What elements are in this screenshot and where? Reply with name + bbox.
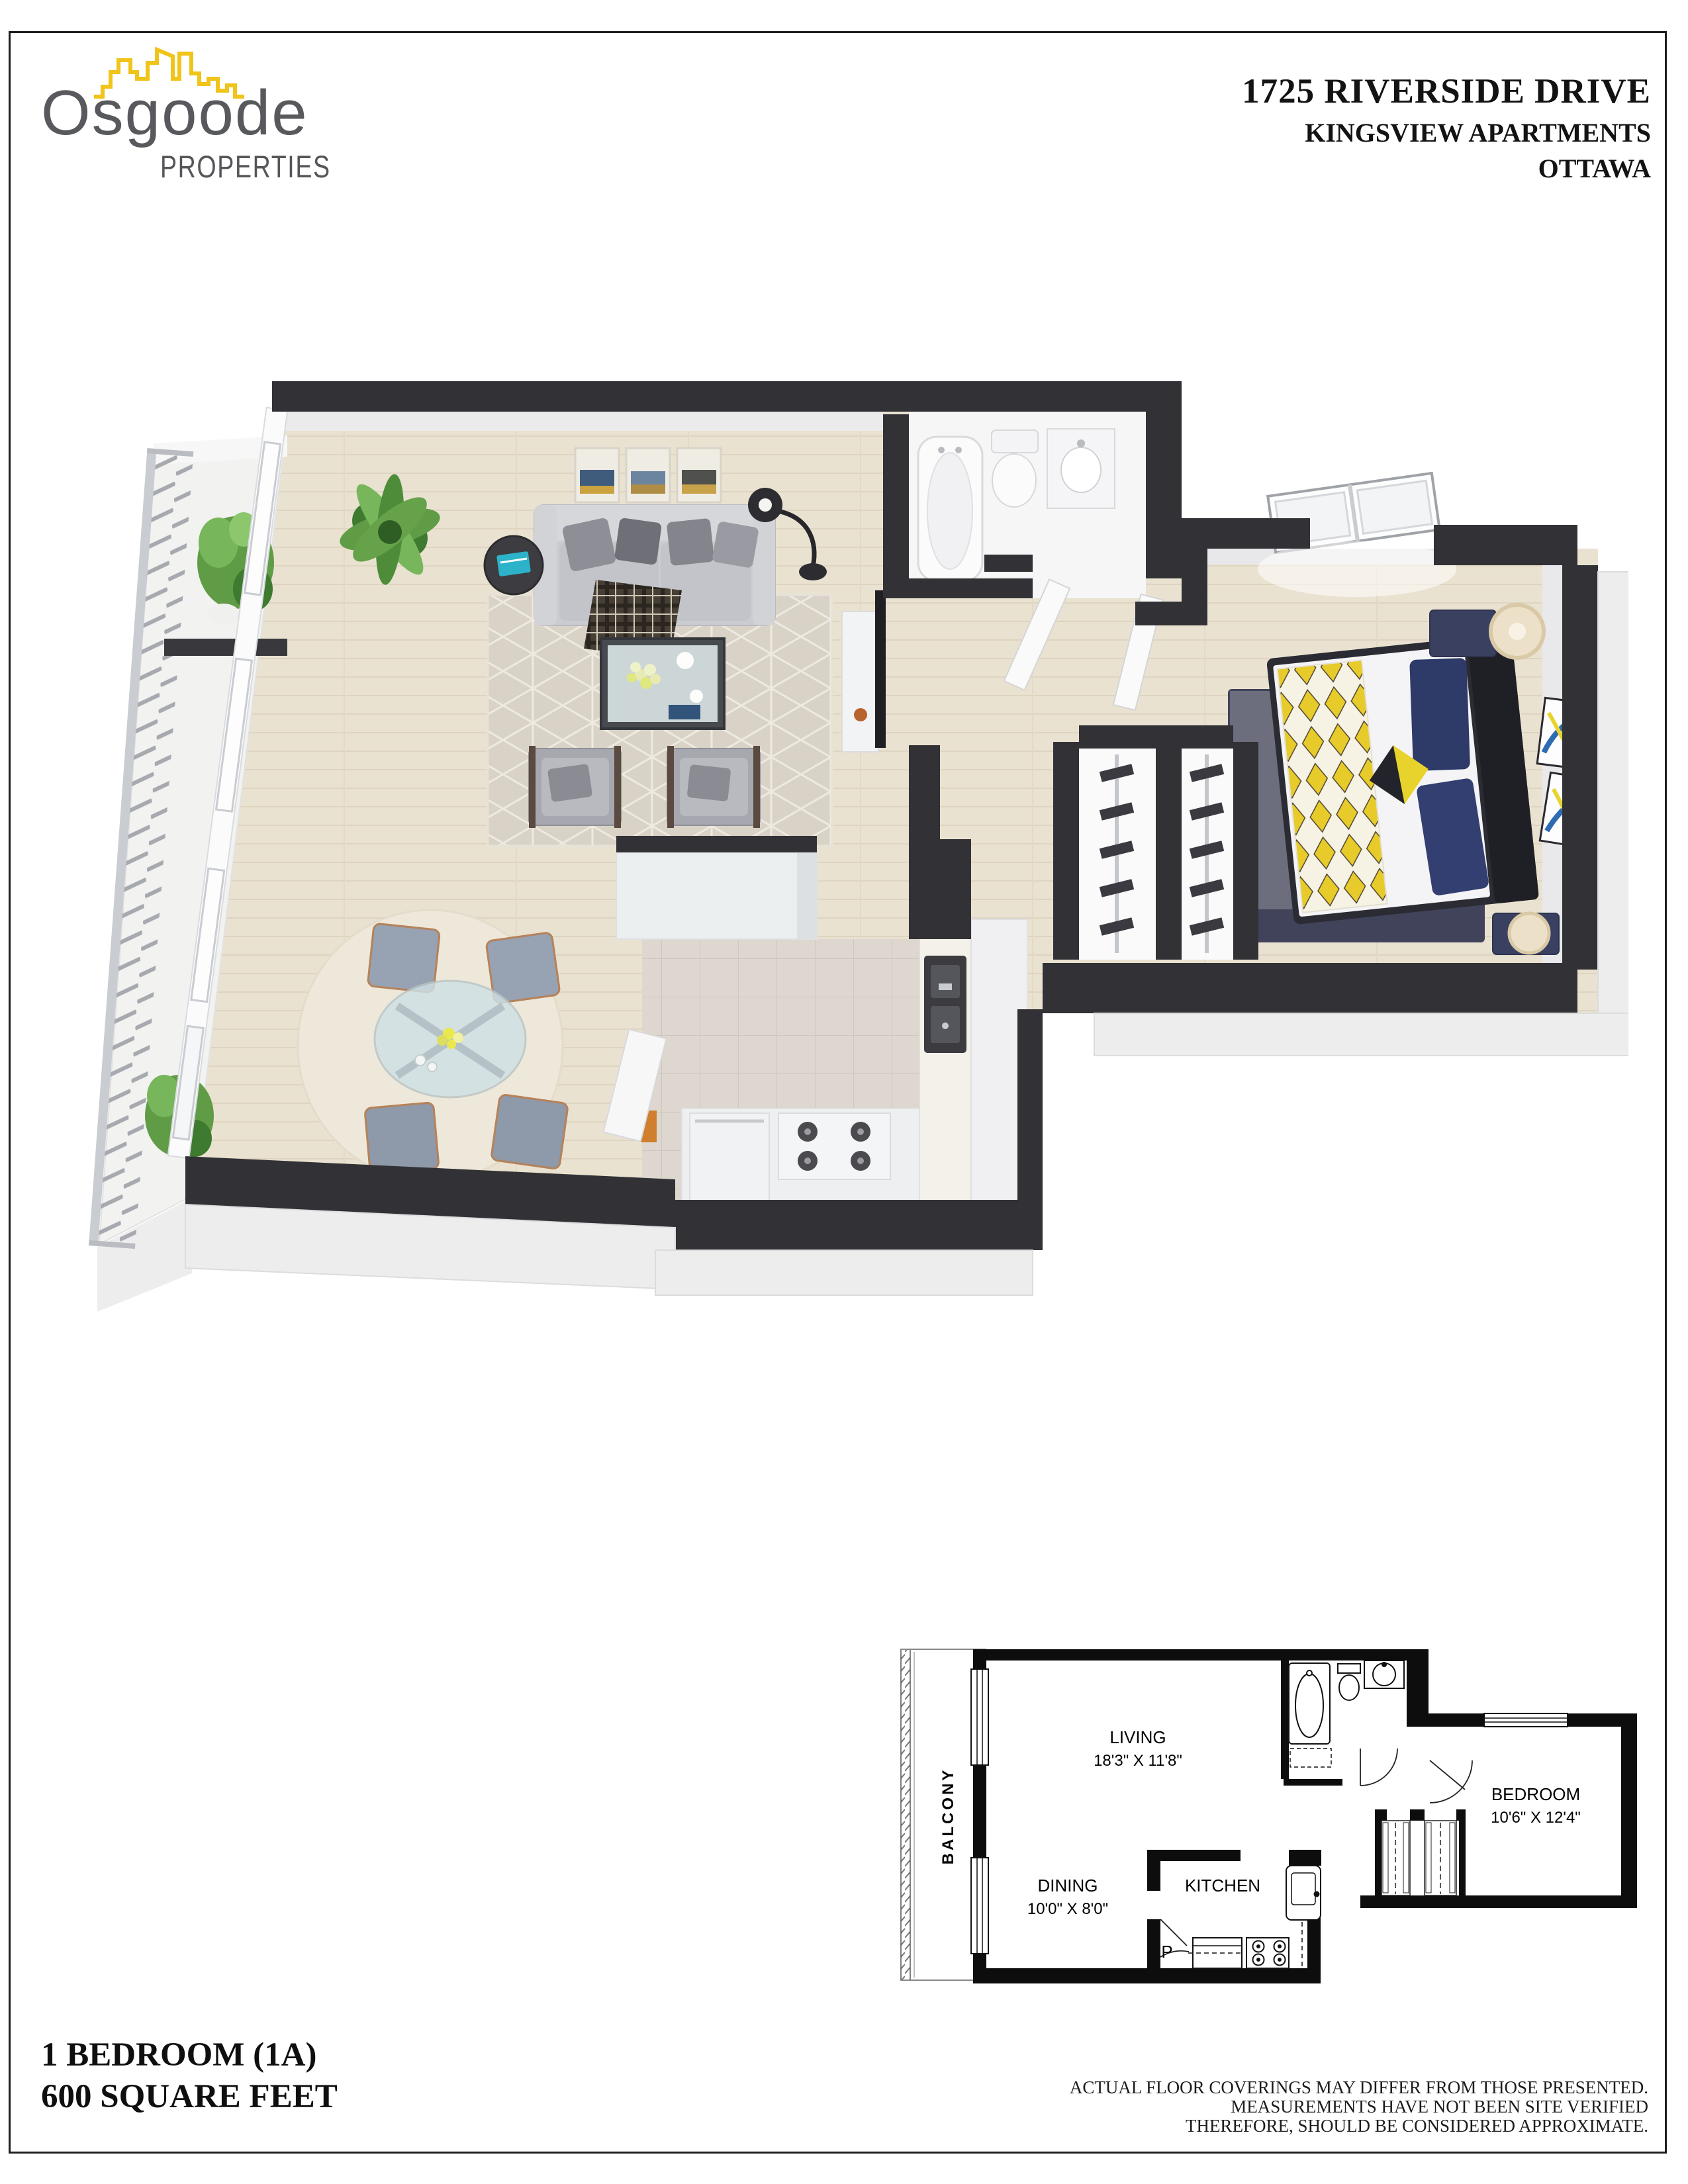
balcony-divider: [164, 639, 287, 656]
closets-2d: [1382, 1821, 1456, 1895]
unit-info: 1 BEDROOM (1A) 600 SQUARE FEET: [41, 2034, 338, 2118]
side-table: [485, 536, 543, 594]
bathroom-vanity: [1047, 429, 1115, 508]
disclaimer-line: THEREFORE, SHOULD BE CONSIDERED APPROXIM…: [1070, 2116, 1648, 2136]
floor-plan-3d: [86, 344, 1628, 1324]
dining-label: DINING: [1038, 1876, 1098, 1895]
bathroom-2d: [1289, 1661, 1404, 1767]
dining-3d: [298, 910, 568, 1181]
television: [875, 590, 886, 748]
address-line: 1725 RIVERSIDE DRIVE: [1242, 71, 1651, 111]
bed: [1266, 633, 1539, 925]
bedroom-door-2d: [1430, 1760, 1472, 1803]
bathtub: [918, 437, 982, 581]
floor-plan-2d: BALCONY: [897, 1629, 1671, 1987]
toilet-2d: [1338, 1664, 1360, 1673]
room-labels-2d: LIVING 18'3" X 11'8" DINING 10'0" X 8'0"…: [1027, 1727, 1581, 1962]
dishwasher: [690, 1113, 769, 1202]
toilet: [992, 430, 1038, 507]
coffee-table: [601, 639, 724, 729]
lamp-bottom: [1509, 913, 1549, 953]
brand-logo: Osgoode PROPERTIES: [41, 44, 326, 183]
disclaimer-line: MEASUREMENTS HAVE NOT BEEN SITE VERIFIED: [1070, 2097, 1648, 2116]
bedroom-dims: 10'6" X 12'4": [1491, 1809, 1581, 1827]
disclaimer: ACTUAL FLOOR COVERINGS MAY DIFFER FROM T…: [1070, 2078, 1648, 2136]
armchair-left: [529, 746, 621, 828]
kitchen-label: KITCHEN: [1185, 1876, 1260, 1895]
stove: [778, 1113, 890, 1179]
vase: [854, 708, 867, 721]
dining-dims: 10'0" X 8'0": [1027, 1900, 1108, 1918]
building-name: KINGSVIEW APARTMENTS: [1242, 117, 1651, 148]
dining-table: [375, 981, 526, 1097]
balcony-label: BALCONY: [939, 1768, 957, 1865]
flyer-page: Osgoode PROPERTIES 1725 RIVERSIDE DRIVE …: [0, 0, 1688, 2184]
unit-area: 600 SQUARE FEET: [41, 2076, 338, 2118]
wall-art-frames: [575, 448, 721, 502]
armchair-right: [667, 746, 760, 828]
nightstand-top: [1430, 610, 1496, 657]
tv-console: [842, 612, 878, 752]
living-label: LIVING: [1109, 1727, 1166, 1747]
bath-door-2d: [1360, 1749, 1397, 1786]
brand-name: Osgoode: [41, 77, 308, 150]
property-address: 1725 RIVERSIDE DRIVE KINGSVIEW APARTMENT…: [1242, 71, 1651, 184]
unit-type: 1 BEDROOM (1A): [41, 2034, 338, 2076]
kitchen-peninsula: [616, 852, 817, 939]
disclaimer-line: ACTUAL FLOOR COVERINGS MAY DIFFER FROM T…: [1070, 2078, 1648, 2097]
kitchen-sink: [924, 956, 966, 1053]
living-dims: 18'3" X 11'8": [1094, 1752, 1182, 1770]
brand-subtitle: PROPERTIES: [160, 148, 331, 185]
closet-right-bay: [1182, 749, 1233, 960]
pantry-label: P: [1161, 1942, 1172, 1962]
city-name: OTTAWA: [1242, 153, 1651, 184]
bedroom-label: BEDROOM: [1491, 1784, 1580, 1804]
closet-left-bay: [1079, 749, 1156, 960]
